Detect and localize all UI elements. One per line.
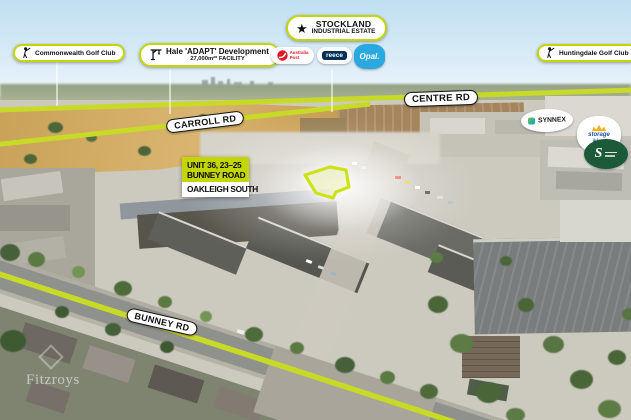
badge-subtitle: INDUSTRIAL ESTATE (312, 29, 376, 36)
tree (430, 252, 443, 263)
tree (158, 296, 172, 308)
logo-green-s: S (584, 139, 628, 169)
warehouse-roof (473, 237, 631, 335)
tree (290, 342, 304, 354)
logo-reece: reece (317, 47, 352, 64)
tree (105, 323, 121, 336)
tree (86, 133, 97, 142)
aerial-photo (0, 0, 631, 420)
tree (0, 244, 20, 261)
tree (506, 408, 525, 420)
tree (200, 311, 212, 322)
tree (0, 330, 26, 352)
logo-opal: Opal. (354, 44, 385, 69)
tree (518, 298, 534, 312)
address-line3: OAKLEIGH SOUTH (187, 184, 244, 194)
tree (543, 336, 564, 353)
tree (500, 256, 512, 266)
roof (556, 171, 623, 191)
logo-australia-post: Australia Post (271, 47, 314, 64)
tree (428, 296, 448, 313)
badge-title: Hale 'ADAPT' Development (166, 47, 269, 56)
tree (420, 384, 438, 399)
tree (55, 306, 69, 318)
tree (245, 327, 263, 342)
tree (380, 371, 395, 384)
tree (72, 266, 85, 278)
tree (570, 370, 593, 389)
tree (476, 382, 501, 403)
badge-label: Huntingdale Golf Club (559, 50, 629, 57)
highlight-glow (258, 142, 423, 232)
crane-icon (150, 48, 162, 61)
address-bottom: OAKLEIGH SOUTH (182, 182, 249, 197)
synnex-icon (528, 117, 535, 124)
star-icon: ★ (296, 22, 308, 35)
roof (0, 205, 70, 231)
badge-huntingdale-golf: Huntingdale Golf Club (537, 44, 631, 62)
address-top: UNIT 36, 23–25 BUNNEY ROAD (182, 157, 249, 182)
australia-post-icon (277, 50, 288, 61)
tree (28, 252, 45, 267)
address-line2: BUNNEY ROAD (187, 170, 244, 180)
badge-stockland: ★ STOCKLAND INDUSTRIAL ESTATE (286, 15, 387, 41)
tree (598, 400, 621, 418)
tree (608, 350, 626, 365)
tree (48, 122, 63, 133)
golfer-icon (546, 47, 555, 59)
golfer-icon (22, 47, 31, 59)
watermark: Fitzroys (26, 372, 80, 389)
tree (335, 357, 355, 373)
tree (622, 308, 631, 320)
tree (450, 334, 473, 353)
tree (160, 341, 174, 353)
badge-hale-adapt: Hale 'ADAPT' Development 27,000m²* FACIL… (139, 43, 280, 67)
stylized-s-icon: S (595, 147, 603, 161)
road-label-centre: CENTRE RD (404, 90, 479, 108)
property-address-label: UNIT 36, 23–25 BUNNEY ROAD OAKLEIGH SOUT… (182, 157, 249, 197)
crown-icon (590, 124, 608, 132)
logo-text: SYNNEX (538, 116, 566, 124)
address-line1: UNIT 36, 23–25 (187, 160, 244, 170)
logo-text: Opal. (359, 52, 379, 61)
white-building (560, 196, 631, 242)
text-line (605, 155, 615, 157)
badge-subtitle: 27,000m²* FACILITY (190, 56, 244, 62)
logo-text: Post (290, 56, 309, 61)
logo-small-text (605, 152, 617, 157)
logo-text: reece (322, 51, 347, 61)
aerial-location-image: Commonwealth Golf Club Hale 'ADAPT' Deve… (0, 0, 631, 420)
tree (24, 154, 37, 164)
text-line (605, 152, 617, 154)
badge-commonwealth-golf: Commonwealth Golf Club (13, 44, 125, 62)
badge-label: Commonwealth Golf Club (35, 50, 116, 57)
tree (114, 281, 132, 296)
